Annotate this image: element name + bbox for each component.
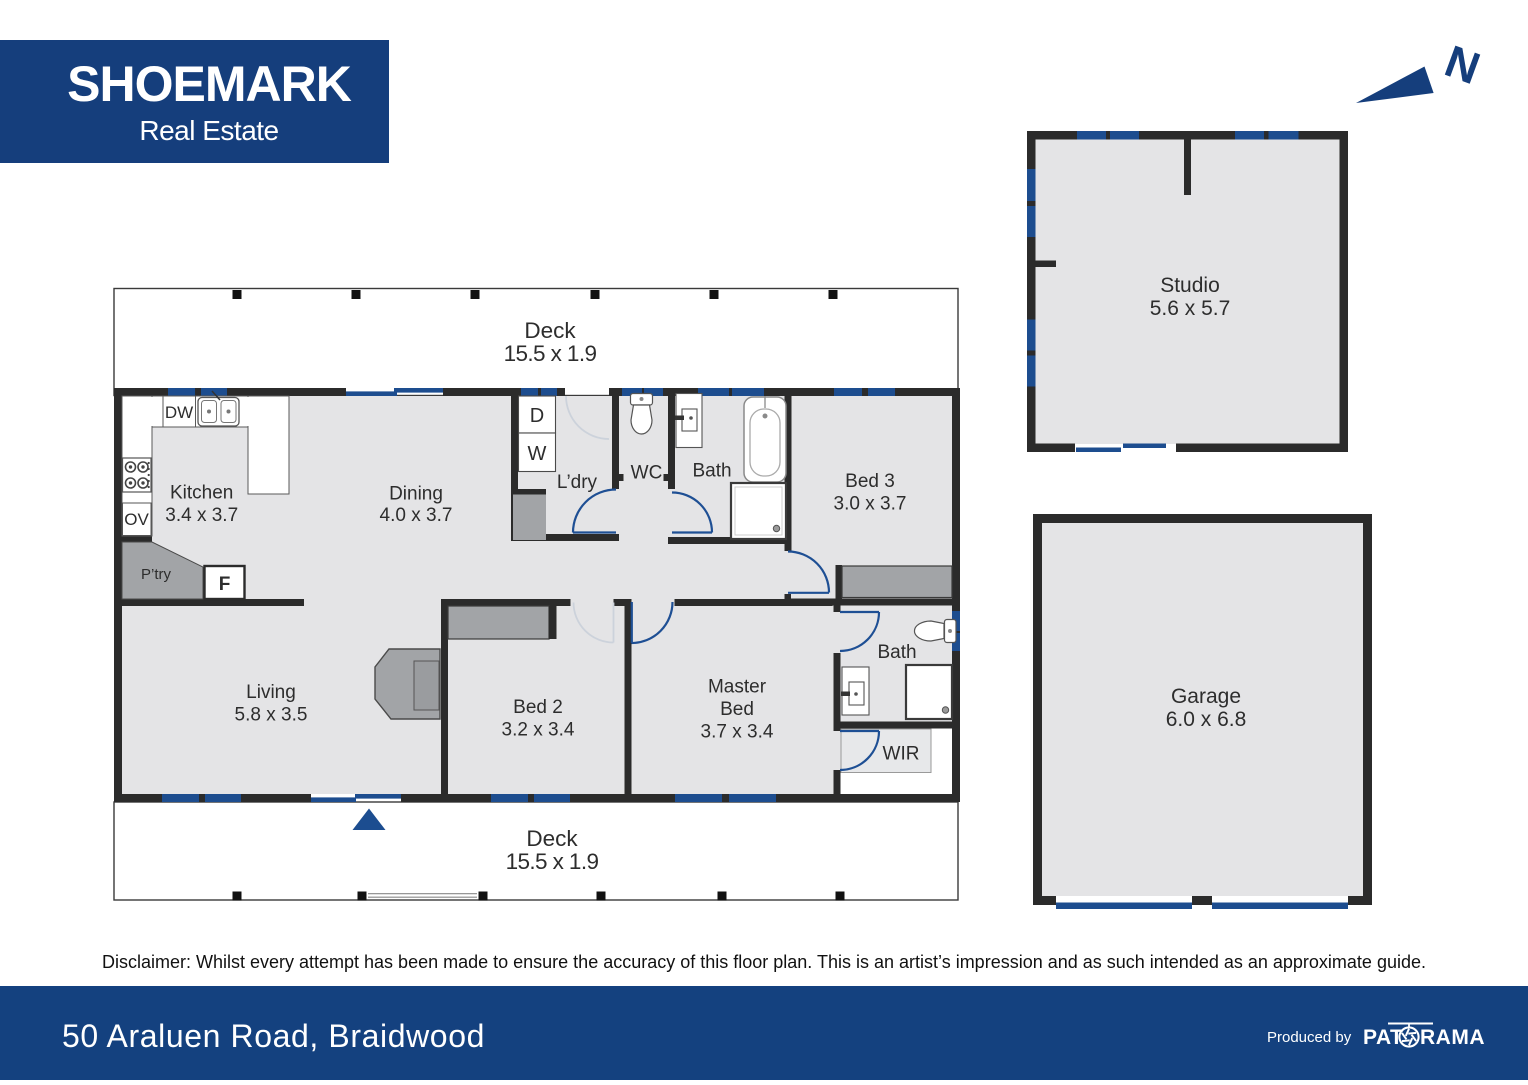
svg-text:F: F — [219, 574, 231, 595]
svg-text:Disclaimer: Whilst every attem: Disclaimer: Whilst every attempt has bee… — [102, 952, 1426, 972]
svg-text:W: W — [528, 443, 547, 465]
svg-text:3.4 x 3.7: 3.4 x 3.7 — [165, 505, 238, 526]
svg-text:Bath: Bath — [692, 461, 731, 482]
svg-text:Studio: Studio — [1160, 274, 1220, 297]
svg-text:15.5 x 1.9: 15.5 x 1.9 — [504, 341, 597, 366]
svg-text:Living: Living — [246, 682, 296, 703]
svg-text:DW: DW — [165, 403, 193, 422]
svg-text:3.2 x 3.4: 3.2 x 3.4 — [502, 720, 575, 741]
svg-text:Deck: Deck — [526, 826, 578, 851]
svg-text:Dining: Dining — [389, 484, 443, 505]
svg-text:15.5 x 1.9: 15.5 x 1.9 — [506, 849, 599, 874]
svg-text:Master: Master — [708, 677, 767, 698]
svg-text:Deck: Deck — [524, 318, 576, 343]
svg-text:WC: WC — [631, 463, 663, 484]
svg-text:PAT: PAT — [1363, 1026, 1403, 1049]
svg-text:Produced by: Produced by — [1267, 1029, 1352, 1046]
svg-text:Real Estate: Real Estate — [139, 115, 278, 146]
svg-text:SHOEMARK: SHOEMARK — [67, 56, 352, 112]
svg-text:Kitchen: Kitchen — [170, 483, 233, 504]
svg-text:RAMA: RAMA — [1420, 1026, 1485, 1049]
svg-text:L’dry: L’dry — [557, 472, 598, 493]
svg-text:P’try: P’try — [141, 566, 172, 583]
svg-text:Bed 3: Bed 3 — [845, 471, 895, 492]
svg-text:5.8 x 3.5: 5.8 x 3.5 — [235, 705, 308, 726]
svg-text:Bed: Bed — [720, 699, 754, 720]
svg-text:OV: OV — [124, 510, 149, 529]
svg-text:WIR: WIR — [883, 744, 920, 765]
svg-text:Garage: Garage — [1171, 685, 1241, 708]
svg-text:50 Araluen Road, Braidwood: 50 Araluen Road, Braidwood — [62, 1018, 485, 1054]
svg-text:6.0 x 6.8: 6.0 x 6.8 — [1166, 708, 1247, 731]
svg-text:D: D — [530, 405, 544, 427]
svg-text:5.6 x 5.7: 5.6 x 5.7 — [1150, 297, 1231, 320]
svg-text:4.0 x 3.7: 4.0 x 3.7 — [380, 505, 453, 526]
svg-text:Bed 2: Bed 2 — [513, 697, 563, 718]
svg-text:N: N — [1439, 35, 1487, 94]
svg-text:3.7 x 3.4: 3.7 x 3.4 — [701, 722, 774, 743]
svg-text:3.0 x 3.7: 3.0 x 3.7 — [834, 494, 907, 515]
svg-text:Bath: Bath — [877, 642, 916, 663]
